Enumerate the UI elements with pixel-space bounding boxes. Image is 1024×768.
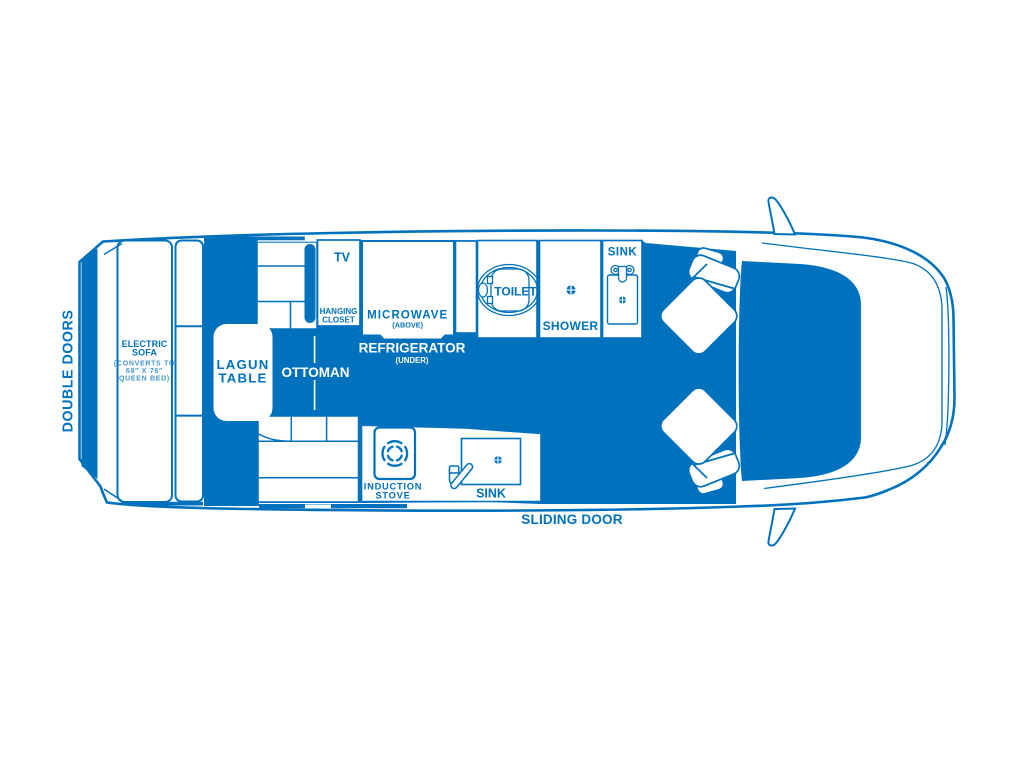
svg-text:TOILET: TOILET — [494, 285, 537, 299]
svg-text:SHOWER: SHOWER — [543, 319, 599, 333]
svg-text:(UNDER): (UNDER) — [396, 356, 429, 365]
svg-text:(CONVERTS TO: (CONVERTS TO — [114, 361, 175, 368]
svg-text:REFRIGERATOR: REFRIGERATOR — [359, 341, 466, 356]
svg-text:SINK: SINK — [608, 247, 638, 259]
svg-text:STOVE: STOVE — [375, 491, 410, 501]
svg-text:QUEEN BED): QUEEN BED) — [119, 375, 170, 382]
svg-text:(ABOVE): (ABOVE) — [392, 321, 423, 330]
svg-text:TABLE: TABLE — [219, 371, 268, 386]
svg-text:SINK: SINK — [476, 487, 506, 501]
svg-text:OTTOMAN: OTTOMAN — [282, 365, 350, 380]
svg-text:TV: TV — [334, 251, 351, 265]
svg-text:SLIDING DOOR: SLIDING DOOR — [521, 512, 622, 527]
svg-text:DOUBLE DOORS: DOUBLE DOORS — [61, 310, 77, 433]
svg-text:SOFA: SOFA — [132, 348, 157, 358]
svg-text:68″ X 76″: 68″ X 76″ — [126, 368, 163, 375]
svg-text:CLOSET: CLOSET — [322, 316, 355, 325]
